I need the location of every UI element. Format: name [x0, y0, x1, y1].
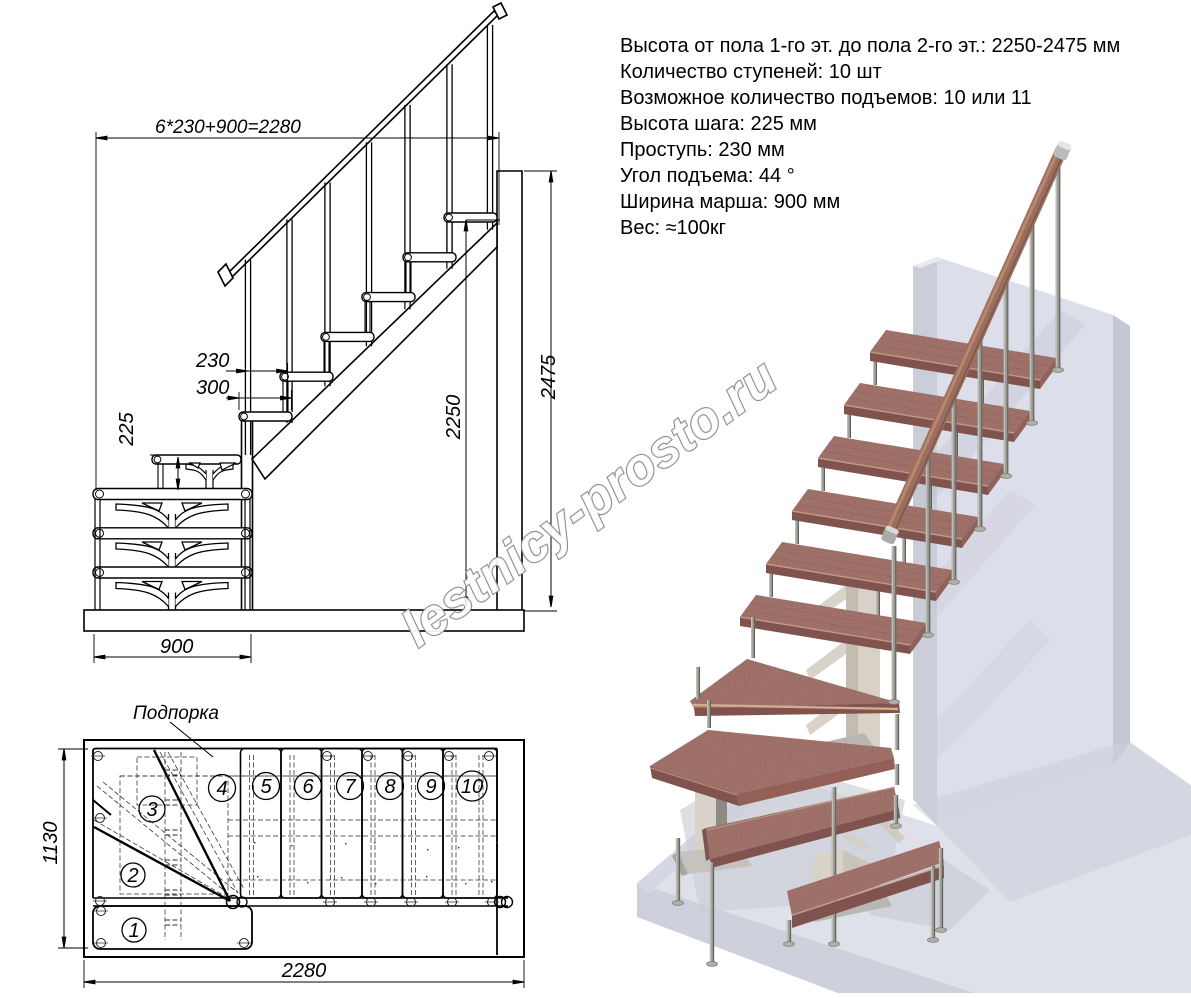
svg-text:7: 7 — [344, 776, 356, 798]
svg-text:Угол подъема: 44 °: Угол подъема: 44 ° — [620, 165, 795, 187]
svg-text:3: 3 — [146, 799, 157, 821]
svg-text:Высота шага: 225 мм: Высота шага: 225 мм — [620, 113, 817, 135]
svg-text:Ширина марша: 900 мм: Ширина марша: 900 мм — [620, 191, 840, 213]
svg-text:Количество ступеней: 10 шт: Количество ступеней: 10 шт — [620, 61, 882, 83]
svg-text:8: 8 — [384, 776, 395, 798]
svg-text:2475: 2475 — [538, 354, 560, 400]
svg-text:Высота от пола 1-го эт. до пол: Высота от пола 1-го эт. до пола 2-го эт.… — [620, 35, 1120, 57]
svg-text:300: 300 — [196, 377, 229, 399]
svg-text:2250: 2250 — [443, 395, 465, 441]
svg-text:6*230+900=2280: 6*230+900=2280 — [155, 117, 301, 138]
svg-text:Подпорка: Подпорка — [133, 703, 219, 724]
svg-text:2: 2 — [126, 865, 138, 887]
svg-text:225: 225 — [116, 411, 138, 446]
svg-text:Вес: ≈100кг: Вес: ≈100кг — [620, 217, 726, 239]
svg-text:Проступь: 230 мм: Проступь: 230 мм — [620, 139, 785, 161]
svg-text:9: 9 — [425, 776, 436, 798]
svg-text:4: 4 — [216, 778, 227, 800]
svg-text:230: 230 — [195, 350, 229, 372]
svg-text:6: 6 — [302, 776, 314, 798]
svg-text:900: 900 — [160, 636, 193, 658]
svg-text:1130: 1130 — [40, 821, 62, 864]
svg-text:2280: 2280 — [281, 960, 327, 982]
svg-text:Возможное количество подъемов:: Возможное количество подъемов: 10 или 11 — [620, 87, 1032, 109]
svg-text:1: 1 — [128, 920, 139, 942]
svg-text:10: 10 — [461, 776, 483, 798]
svg-text:5: 5 — [260, 776, 272, 798]
